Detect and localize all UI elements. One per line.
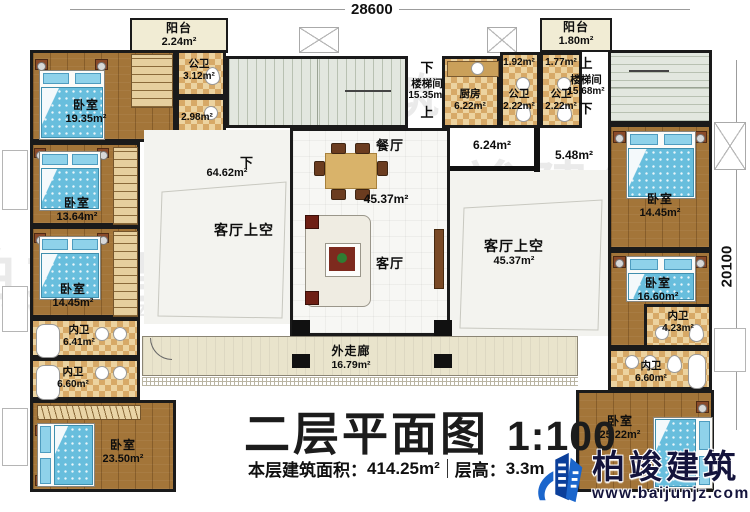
stair-up-label: 上 [579, 56, 592, 71]
company-website: www.baijunjz.com [592, 485, 750, 503]
pillow [699, 421, 710, 450]
stair-divider [317, 59, 318, 125]
room-label: 1.92m² [500, 57, 538, 69]
room-label: 6.24m² [460, 138, 524, 153]
pillow [43, 73, 70, 84]
room-label: 内卫4.23m² [646, 310, 710, 335]
pillow [40, 426, 51, 452]
nightstand [613, 256, 626, 268]
sink-icon [113, 366, 127, 380]
bathtub-icon [688, 354, 706, 389]
floor-area-value: 414.25m² [367, 459, 440, 479]
room-label: 内卫6.41m² [44, 324, 114, 349]
lamp-icon [615, 134, 624, 143]
room-label: 45.37m² [358, 192, 414, 207]
plant-icon [337, 253, 347, 263]
pillow [42, 239, 67, 250]
pillow [630, 134, 659, 145]
stair-down-label: 下 [579, 101, 592, 116]
room-bedroom-right-1 [608, 124, 712, 250]
skylight-box [487, 27, 517, 53]
room-label: 厨房6.22m² [442, 88, 498, 113]
column [292, 354, 310, 368]
room-label: 客厅上空 45.37m² [464, 238, 564, 268]
room-label: 卧室14.45m² [618, 192, 702, 220]
room-living-dining [290, 128, 450, 336]
pillow [72, 154, 97, 165]
closet [131, 54, 173, 108]
stair-arrow [345, 90, 391, 92]
chair [331, 143, 346, 154]
plan-stats: 本层建筑面积： 414.25m² 层高： 3.3m [248, 456, 545, 481]
top-dimension-label: 28600 [345, 1, 399, 18]
pillow [664, 134, 693, 145]
bed-quilt [628, 148, 694, 197]
room-label: 内卫6.60m² [616, 360, 686, 385]
room-label: 客厅上空 [196, 222, 292, 239]
plan-title-text: 二层平面图 [244, 398, 489, 464]
chair [331, 189, 346, 200]
floorplan-canvas: 28600 20100 柏竣建筑 柏竣建筑 www.baijunjz.com 柏… [0, 0, 750, 512]
company-name: 柏竣建筑 [592, 450, 750, 483]
tv-console [434, 229, 444, 289]
stair-labels-right: 上 楼梯间 15.68m² 下 [562, 54, 610, 118]
pillow [72, 239, 97, 250]
pillow [664, 259, 693, 270]
stats-divider [447, 459, 448, 478]
pillow [630, 259, 659, 270]
room-label: 客厅 [366, 256, 414, 272]
company-logo-text: 柏竣建筑 www.baijunjz.com [592, 450, 750, 503]
room-label: 卧室16.60m² [616, 276, 700, 304]
nightstand [613, 131, 626, 143]
window-bay [714, 328, 746, 372]
stair-up-label: 上 [420, 105, 433, 120]
lamp-icon [696, 259, 705, 268]
window-bay [2, 408, 28, 466]
room-label: 卧室19.35m² [36, 98, 136, 126]
wall-pier [292, 320, 310, 336]
sink-icon [113, 327, 127, 341]
chair [377, 161, 388, 176]
room-label: 阳台1.80m² [540, 20, 612, 48]
lamp-icon [615, 259, 624, 268]
corridor-edge-hatch [142, 377, 578, 386]
room-label: 卧室23.50m² [78, 438, 168, 466]
floor-area-label: 本层建筑面积： [248, 456, 367, 481]
room-label: 内卫6.60m² [38, 366, 108, 391]
speaker [305, 291, 319, 305]
room-label: 阳台2.24m² [130, 21, 228, 49]
wall-pier [434, 320, 452, 336]
stair-divider [611, 87, 709, 88]
column [434, 354, 452, 368]
pillow [40, 458, 51, 484]
dining-table [325, 153, 377, 189]
room-label: 卧室14.45m² [28, 282, 118, 310]
wardrobe [37, 405, 141, 420]
room-label: 2.98m² [174, 112, 220, 124]
room-label: 公卫3.12m² [176, 58, 222, 83]
room-label: 外走廊 16.79m² [316, 344, 386, 371]
pillow [42, 154, 67, 165]
nightstand [35, 59, 48, 70]
nightstand [95, 59, 108, 70]
room-label: 餐厅 [366, 138, 414, 154]
floor-height-label: 层高： [455, 456, 506, 481]
stair-down-label: 下 [420, 60, 433, 75]
pillow [75, 73, 102, 84]
wall-segment [450, 166, 540, 171]
window-bay [714, 122, 746, 170]
window-bay [2, 150, 28, 210]
right-dimension-line [736, 60, 737, 430]
window-bay [2, 286, 28, 332]
bed [626, 131, 696, 199]
room-label: 卧室13.64m² [32, 196, 122, 224]
room-label: 64.62m² [192, 167, 262, 180]
stairwell-left [226, 56, 408, 128]
room-label: 5.48m² [544, 148, 604, 163]
room-label: 公卫2.22m² [500, 88, 538, 113]
speaker [305, 215, 319, 229]
lamp-icon [696, 134, 705, 143]
stairwell-right [608, 50, 712, 124]
nightstand [696, 401, 709, 413]
lamp-icon [698, 404, 707, 413]
skylight-box [299, 27, 339, 53]
room-bedroom-left-1 [30, 50, 176, 142]
right-dimension-label: 20100 [718, 244, 735, 290]
sink-icon [471, 62, 484, 75]
chair [314, 161, 325, 176]
stair-arrow [629, 70, 669, 72]
company-logo-icon [534, 450, 592, 506]
company-logo: 柏竣建筑 www.baijunjz.com [534, 450, 750, 506]
